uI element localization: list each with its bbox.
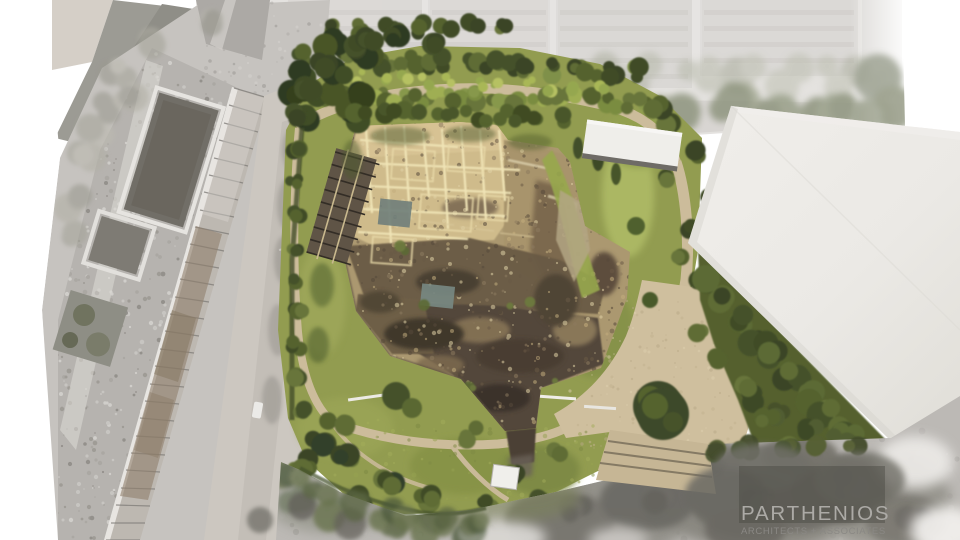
svg-text:PARTHENIOS: PARTHENIOS [741, 502, 890, 525]
svg-text:ARCHITECTS + ASSOCIATES: ARCHITECTS + ASSOCIATES [741, 526, 886, 537]
